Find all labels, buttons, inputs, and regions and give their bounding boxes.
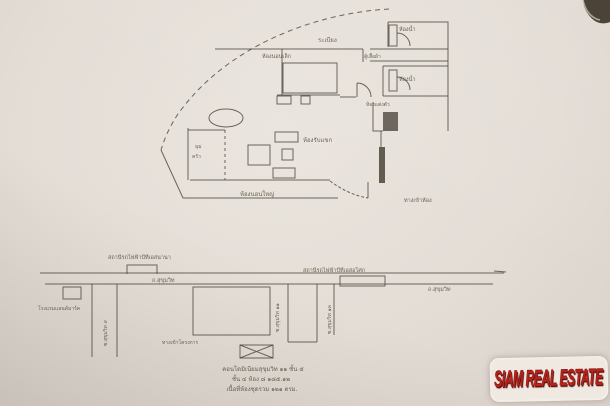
label-road-left: ถ.สุขุมวิท	[152, 277, 175, 284]
label-living-room: ห้องรับแขก	[303, 137, 332, 144]
entrance-door-swing	[330, 181, 368, 198]
label-kitchen-2: ครัว	[192, 154, 201, 160]
label-dressing-room: ห้องแต่งตัว	[366, 101, 390, 108]
scanned-drawing: ระเบียง ห้องนอนเล็ก ห้องน้ำ ตู้เสื้อผ้า …	[0, 0, 610, 406]
map-labels: สถานีรถไฟฟ้าบีทีเอสนานา สถานีรถไฟฟ้าบีที…	[38, 254, 451, 346]
landmark-building	[63, 287, 81, 299]
label-master-bedroom: ห้องนอนใหญ่	[240, 190, 274, 198]
floor-plan: ระเบียง ห้องนอนเล็ก ห้องน้ำ ตู้เสื้อผ้า …	[161, 9, 448, 204]
balcony-arc	[161, 9, 389, 150]
label-station-left: สถานีรถไฟฟ้าบีทีเอสนานา	[108, 254, 171, 261]
map-roads	[40, 265, 506, 358]
city-block	[193, 287, 270, 335]
label-road-right: ถ.สุขุมวิท	[428, 286, 451, 293]
watermark-text: SIAM REAL ESTATE	[494, 365, 603, 394]
right-corridor-wall	[379, 147, 385, 183]
location-map: สถานีรถไฟฟ้าบีทีเอสนานา สถานีรถไฟฟ้าบีที…	[38, 254, 506, 393]
map-caption: คอนโดมิเนียมสุขุมวิท ๑๑ ชั้น ๕ ชั้น ๔ ห้…	[222, 363, 304, 393]
siam-real-estate-watermark: SIAM REAL ESTATE	[490, 356, 609, 402]
label-wardrobe: ตู้เสื้อผ้า	[364, 51, 381, 60]
caption-line2: ชั้น ๔ ห้อง ๘ ๑๘๕.๑๒	[232, 373, 290, 383]
label-balcony: ระเบียง	[318, 36, 337, 44]
photographed-document: ระเบียง ห้องนอนเล็ก ห้องน้ำ ตู้เสื้อผ้า …	[0, 0, 610, 406]
label-landmark-left: โรงแรมแลนด์มาร์ค	[38, 305, 80, 312]
condo-marker	[240, 345, 273, 358]
label-bathroom-mid: ห้องน้ำ	[399, 75, 415, 83]
shaft-box	[383, 112, 398, 131]
label-lane-bottom: ทางเข้าโครงการ	[162, 339, 198, 346]
caption-line1: คอนโดมิเนียมสุขุมวิท ๑๑ ชั้น ๕	[222, 363, 304, 373]
caption-line3: เนื้อที่ห้องชุดรวม ๑๒๑ ตรม.	[226, 383, 297, 393]
label-soi-right: ซ.สุขุมวิท ๑๓	[326, 304, 333, 334]
label-soi-mid: ซ.สุขุมวิท ๑๑	[274, 303, 281, 332]
label-bathroom-top: ห้องน้ำ	[399, 25, 415, 33]
label-entrance: ทางเข้าห้อง	[404, 197, 432, 204]
dining-table	[209, 109, 243, 127]
label-kitchen-1: มุม	[195, 144, 202, 150]
floor-plan-walls	[161, 22, 448, 198]
label-bedroom2: ห้องนอนเล็ก	[262, 52, 291, 60]
label-soi-left: ซ.สุขุมวิท ๙	[102, 320, 109, 346]
road-end-arrow	[494, 271, 506, 272]
label-station-right: สถานีรถไฟฟ้าบีทีเอสอโศก	[303, 266, 365, 274]
